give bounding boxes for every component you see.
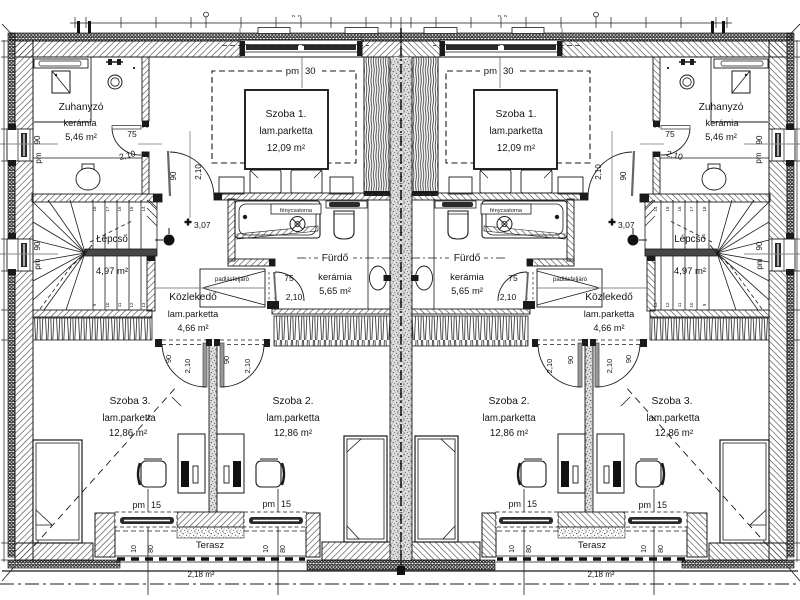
- svg-text:15: 15: [657, 500, 667, 510]
- svg-text:Fürdő: Fürdő: [454, 253, 481, 264]
- svg-text:16: 16: [677, 206, 682, 211]
- svg-text:pm: pm: [34, 152, 43, 163]
- svg-text:75: 75: [665, 129, 675, 139]
- svg-text:90: 90: [169, 171, 178, 180]
- svg-text:Szoba 3.: Szoba 3.: [651, 396, 692, 407]
- svg-text:10: 10: [641, 545, 648, 553]
- svg-text:75: 75: [127, 129, 137, 139]
- svg-text:kerámia: kerámia: [450, 272, 485, 283]
- svg-text:10: 10: [509, 545, 516, 553]
- svg-text:80: 80: [148, 545, 155, 553]
- svg-text:13: 13: [141, 302, 146, 307]
- svg-text:Szoba 1.: Szoba 1.: [495, 109, 536, 120]
- svg-text:2,10: 2,10: [545, 359, 554, 374]
- svg-text:Szoba 2.: Szoba 2.: [272, 396, 313, 407]
- svg-text:pm: pm: [33, 258, 42, 269]
- svg-text:2,10: 2,10: [243, 359, 252, 374]
- svg-text:Szoba 2.: Szoba 2.: [488, 396, 529, 407]
- svg-text:30: 30: [305, 66, 316, 77]
- svg-text:90: 90: [566, 356, 575, 364]
- svg-text:90: 90: [619, 171, 628, 180]
- svg-text:90: 90: [33, 135, 42, 144]
- svg-text:15: 15: [129, 206, 134, 211]
- svg-text:3,07: 3,07: [194, 220, 211, 230]
- svg-text:12: 12: [665, 302, 670, 307]
- svg-text:75: 75: [508, 273, 518, 283]
- svg-text:2,10: 2,10: [194, 164, 203, 180]
- svg-text:90: 90: [33, 241, 42, 250]
- svg-text:lam.parketta: lam.parketta: [259, 126, 313, 137]
- svg-text:Zuhanyzó: Zuhanyzó: [699, 102, 744, 113]
- svg-text:18: 18: [92, 206, 97, 211]
- svg-text:2,10: 2,10: [594, 164, 603, 180]
- svg-text:pm: pm: [484, 66, 497, 77]
- svg-text:4,66 m²: 4,66 m²: [177, 323, 208, 333]
- svg-text:10: 10: [105, 302, 110, 307]
- svg-text:14: 14: [141, 206, 146, 211]
- svg-text:5,65 m²: 5,65 m²: [451, 285, 483, 296]
- svg-text:90: 90: [222, 356, 231, 364]
- svg-text:17: 17: [689, 206, 694, 211]
- svg-text:lam.parketta: lam.parketta: [168, 309, 219, 319]
- svg-text:Terasz: Terasz: [578, 540, 606, 551]
- svg-text:2,18 m²: 2,18 m²: [187, 570, 214, 579]
- svg-text:Szoba 1.: Szoba 1.: [265, 109, 306, 120]
- svg-text:10: 10: [131, 545, 138, 553]
- svg-text:kerámia: kerámia: [318, 272, 353, 283]
- svg-text:15: 15: [527, 499, 537, 509]
- svg-text:5,65 m²: 5,65 m²: [319, 285, 351, 296]
- svg-text:15: 15: [281, 499, 291, 509]
- svg-text:14: 14: [653, 206, 658, 211]
- svg-text:pm: pm: [508, 499, 521, 509]
- svg-text:2,10: 2,10: [605, 359, 614, 374]
- svg-text:30: 30: [503, 66, 514, 77]
- svg-text:12,09 m²: 12,09 m²: [497, 143, 536, 154]
- svg-text:lam.parketta: lam.parketta: [646, 413, 700, 424]
- svg-text:Közlekedő: Közlekedő: [169, 292, 217, 303]
- svg-text:Fürdő: Fürdő: [322, 253, 349, 264]
- svg-text:15: 15: [665, 206, 670, 211]
- svg-text:90: 90: [624, 355, 633, 363]
- svg-text:pm: pm: [132, 500, 145, 510]
- svg-text:80: 80: [658, 545, 665, 553]
- svg-text:12,09 m²: 12,09 m²: [267, 143, 306, 154]
- svg-text:90: 90: [755, 241, 764, 250]
- svg-text:2,10: 2,10: [500, 292, 517, 302]
- svg-text:padlásfeljáró: padlásfeljáró: [215, 277, 250, 283]
- svg-text:10: 10: [263, 545, 270, 553]
- svg-text:lam.parketta: lam.parketta: [584, 309, 635, 319]
- svg-text:Lépcső: Lépcső: [96, 234, 128, 245]
- svg-text:pm: pm: [286, 66, 299, 77]
- svg-text:12,86 m²: 12,86 m²: [655, 428, 694, 439]
- svg-text:80: 80: [526, 545, 533, 553]
- svg-text:3,07: 3,07: [618, 220, 635, 230]
- svg-text:16: 16: [117, 206, 122, 211]
- svg-text:4,66 m²: 4,66 m²: [593, 323, 624, 333]
- svg-text:lam.parketta: lam.parketta: [489, 126, 543, 137]
- svg-text:fénycsatorna: fénycsatorna: [280, 208, 313, 214]
- svg-text:2,18 m²: 2,18 m²: [587, 570, 614, 579]
- svg-text:90: 90: [164, 355, 173, 363]
- svg-text:18: 18: [702, 206, 707, 211]
- svg-text:pm: pm: [755, 258, 764, 269]
- svg-text:pm: pm: [754, 152, 763, 163]
- svg-text:12,86 m²: 12,86 m²: [490, 428, 529, 439]
- svg-text:17: 17: [105, 206, 110, 211]
- svg-text:Lépcső: Lépcső: [674, 234, 706, 245]
- svg-text:2,10: 2,10: [286, 292, 303, 302]
- svg-text:padlásfeljáró: padlásfeljáró: [553, 277, 588, 283]
- svg-text:4,97 m²: 4,97 m²: [96, 266, 128, 277]
- svg-text:kerámia: kerámia: [705, 118, 739, 128]
- svg-text:10: 10: [689, 302, 694, 307]
- svg-text:Zuhanyzó: Zuhanyzó: [59, 102, 104, 113]
- svg-text:80: 80: [280, 545, 287, 553]
- svg-text:lam.parketta: lam.parketta: [102, 413, 156, 424]
- svg-text:4,97 m²: 4,97 m²: [674, 266, 706, 277]
- svg-text:75: 75: [284, 273, 294, 283]
- svg-text:5,46 m²: 5,46 m²: [705, 131, 737, 142]
- svg-text:13: 13: [653, 302, 658, 307]
- svg-text:5,46 m²: 5,46 m²: [65, 131, 97, 142]
- svg-text:12,86 m²: 12,86 m²: [274, 428, 313, 439]
- svg-text:pm: pm: [262, 499, 275, 509]
- svg-text:Közlekedő: Közlekedő: [585, 292, 633, 303]
- svg-text:12: 12: [129, 302, 134, 307]
- svg-text:Szoba 3.: Szoba 3.: [109, 396, 150, 407]
- svg-text:11: 11: [677, 302, 682, 307]
- svg-text:lam.parketta: lam.parketta: [482, 413, 536, 424]
- svg-text:kerámia: kerámia: [63, 118, 97, 128]
- svg-text:11: 11: [117, 302, 122, 307]
- svg-text:15: 15: [151, 500, 161, 510]
- svg-text:2,10: 2,10: [183, 359, 192, 374]
- svg-text:pm: pm: [638, 500, 651, 510]
- svg-text:lam.parketta: lam.parketta: [266, 413, 320, 424]
- svg-text:12,86 m²: 12,86 m²: [109, 428, 148, 439]
- svg-text:fénycsatorna: fénycsatorna: [490, 208, 523, 214]
- svg-text:90: 90: [755, 135, 764, 144]
- svg-text:Terasz: Terasz: [196, 540, 224, 551]
